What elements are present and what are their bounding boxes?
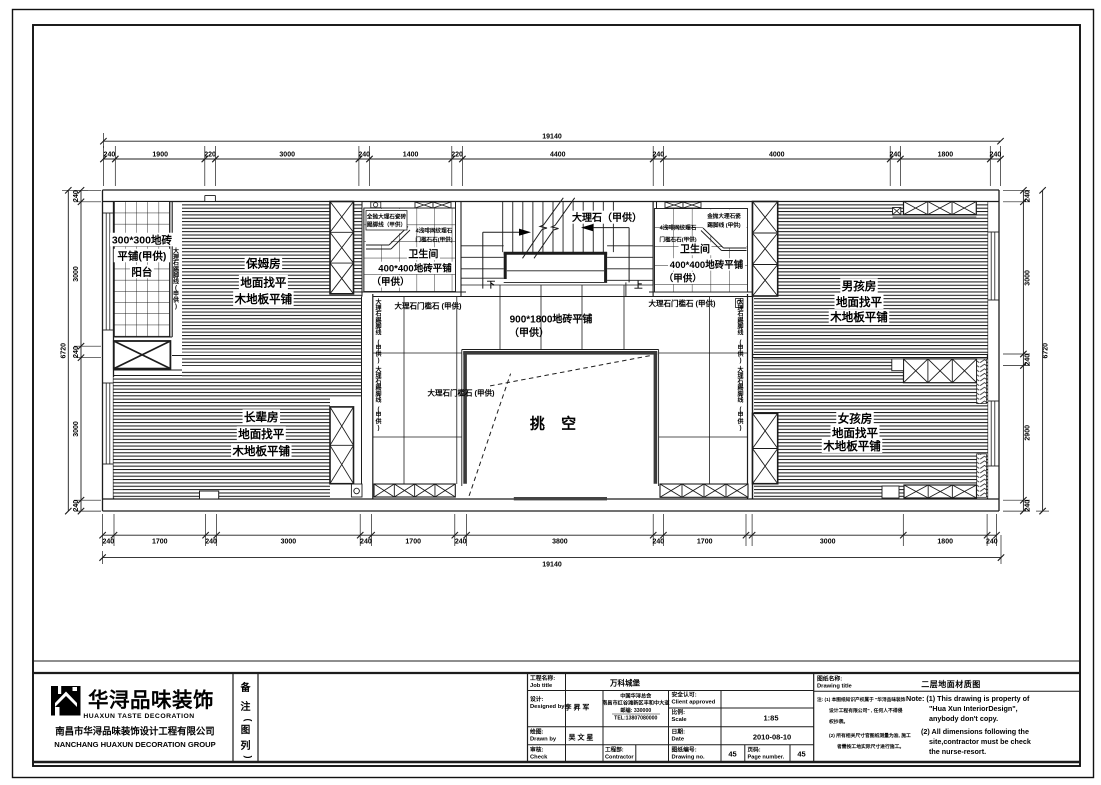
svg-text:脚: 脚 xyxy=(737,322,743,330)
svg-text:设计:: 设计: xyxy=(530,695,544,703)
svg-text:日期:: 日期: xyxy=(672,728,686,736)
svg-text:理: 理 xyxy=(737,371,743,379)
svg-text:踢脚线（甲供）: 踢脚线（甲供） xyxy=(367,221,406,229)
svg-text:4浅啡网纹理石: 4浅啡网纹理石 xyxy=(416,227,453,235)
svg-text:Check: Check xyxy=(530,755,548,761)
svg-text:工程部:: 工程部: xyxy=(605,746,624,754)
svg-text:石: 石 xyxy=(374,311,381,318)
svg-text:踢脚线 (甲供): 踢脚线 (甲供) xyxy=(707,221,740,229)
svg-text:3000: 3000 xyxy=(279,152,295,159)
svg-text:240: 240 xyxy=(358,152,370,159)
svg-text:石: 石 xyxy=(736,311,743,318)
svg-text:(2) All dimensions following t: (2) All dimensions following the xyxy=(921,727,1029,736)
svg-text:45: 45 xyxy=(797,750,805,759)
svg-text:6720: 6720 xyxy=(61,343,68,359)
svg-text:240: 240 xyxy=(205,539,217,546)
svg-text:大: 大 xyxy=(737,365,743,373)
svg-text:240: 240 xyxy=(73,346,80,358)
svg-text:甲: 甲 xyxy=(737,411,743,419)
svg-text:设计工程有限公司" , 任何人不得侵: 设计工程有限公司" , 任何人不得侵 xyxy=(829,707,903,714)
svg-text:): ) xyxy=(378,358,380,364)
svg-text:(2) 所有相关尺寸官图纸测量为准, 施工: (2) 所有相关尺寸官图纸测量为准, 施工 xyxy=(829,732,911,739)
svg-text:Client approved: Client approved xyxy=(672,700,716,706)
svg-text:6720: 6720 xyxy=(1043,343,1050,359)
svg-text:石: 石 xyxy=(736,379,743,386)
svg-text:240: 240 xyxy=(986,539,998,546)
svg-text:19140: 19140 xyxy=(542,134,562,141)
svg-text:240: 240 xyxy=(652,152,664,159)
svg-text:(: ( xyxy=(378,407,380,413)
svg-text:木地板平铺: 木地板平铺 xyxy=(829,310,888,324)
svg-text:备: 备 xyxy=(240,681,252,694)
svg-text:中国华浔总会: 中国华浔总会 xyxy=(620,692,652,700)
svg-text:240: 240 xyxy=(889,152,901,159)
svg-text:线: 线 xyxy=(737,396,743,404)
svg-text:理: 理 xyxy=(375,304,381,312)
svg-text:3000: 3000 xyxy=(281,539,297,546)
svg-text:2900: 2900 xyxy=(1025,425,1032,441)
svg-text:女孩房: 女孩房 xyxy=(838,412,873,426)
svg-text:门槛石石(甲供): 门槛石石(甲供) xyxy=(415,236,452,244)
svg-text:列: 列 xyxy=(241,739,251,752)
svg-text:线: 线 xyxy=(375,396,381,404)
svg-text:Note: (1) This drawing is prop: Note: (1) This drawing is property of xyxy=(906,694,1030,703)
svg-text:踢: 踢 xyxy=(173,265,179,273)
svg-text:240: 240 xyxy=(73,190,80,202)
svg-text:大: 大 xyxy=(173,247,179,255)
svg-text:TEL:13807080000: TEL:13807080000 xyxy=(614,716,657,722)
svg-text:1700: 1700 xyxy=(405,539,421,546)
svg-text:保姆房: 保姆房 xyxy=(245,257,281,271)
svg-text:): ) xyxy=(740,425,742,431)
svg-text:线: 线 xyxy=(173,278,179,286)
svg-text:下: 下 xyxy=(487,280,496,290)
svg-text:踢: 踢 xyxy=(737,384,743,392)
svg-text:供: 供 xyxy=(736,417,743,425)
svg-text:): ) xyxy=(175,304,177,310)
svg-text:甲: 甲 xyxy=(375,411,381,419)
svg-text:3800: 3800 xyxy=(552,539,568,546)
svg-text:220: 220 xyxy=(451,152,463,159)
svg-text:华浔品味装饰: 华浔品味装饰 xyxy=(88,688,214,712)
svg-text:240: 240 xyxy=(990,152,1002,159)
svg-text:"Hua Xun InteriorDesign",: "Hua Xun InteriorDesign", xyxy=(929,704,1018,713)
svg-text:理: 理 xyxy=(173,253,179,261)
svg-text:供: 供 xyxy=(374,350,381,358)
svg-text:脚: 脚 xyxy=(737,390,743,398)
svg-text:Drawing title: Drawing title xyxy=(817,684,853,690)
svg-text:工程名称:: 工程名称: xyxy=(530,674,555,682)
svg-text:Job title: Job title xyxy=(530,683,553,689)
svg-text:李 昇 军: 李 昇 军 xyxy=(564,703,590,712)
svg-text:石: 石 xyxy=(172,260,179,267)
svg-text:900*1800地砖平铺: 900*1800地砖平铺 xyxy=(510,313,593,326)
svg-text:240: 240 xyxy=(73,500,80,512)
svg-text:大: 大 xyxy=(737,298,743,306)
svg-text:者需按工地实际尺寸进行施工。: 者需按工地实际尺寸进行施工。 xyxy=(836,743,904,750)
svg-text:4000: 4000 xyxy=(769,152,785,159)
svg-text:地面找平: 地面找平 xyxy=(238,427,284,441)
svg-text:踢: 踢 xyxy=(737,316,743,324)
svg-text:理: 理 xyxy=(375,371,381,379)
svg-text:(: ( xyxy=(740,407,742,413)
svg-text:45: 45 xyxy=(728,750,736,759)
svg-text:anybody don't copy.: anybody don't copy. xyxy=(929,714,998,723)
svg-text:踢: 踢 xyxy=(375,316,381,324)
svg-text:图纸名称:: 图纸名称: xyxy=(817,675,842,683)
svg-text:长辈房: 长辈房 xyxy=(244,410,279,424)
svg-text:比例:: 比例: xyxy=(672,708,686,716)
svg-text:Drawing no.: Drawing no. xyxy=(672,755,706,761)
svg-text:全抛大理石瓷砖: 全抛大理石瓷砖 xyxy=(366,213,407,221)
svg-text:HUAXUN TASTE DECORATION: HUAXUN TASTE DECORATION xyxy=(83,713,194,720)
svg-text:平铺(甲供): 平铺(甲供) xyxy=(117,250,166,263)
svg-text:3000: 3000 xyxy=(820,539,836,546)
svg-text:NANCHANG HUAXUN DECORATION: NANCHANG HUAXUN DECORATION GROUP xyxy=(54,740,215,749)
svg-text:脚: 脚 xyxy=(375,322,381,330)
svg-text:注: (1) 本图纸知识产权属于 "华浔品味装饰: 注: (1) 本图纸知识产权属于 "华浔品味装饰 xyxy=(817,696,906,703)
svg-text:挑 空: 挑 空 xyxy=(530,415,582,433)
svg-text:大: 大 xyxy=(375,365,381,373)
svg-text:220: 220 xyxy=(204,152,216,159)
svg-text:1800: 1800 xyxy=(938,152,954,159)
svg-text:石: 石 xyxy=(374,379,381,386)
svg-text:3000: 3000 xyxy=(73,266,80,282)
svg-text:Scale: Scale xyxy=(672,717,688,723)
svg-text:the nurse-resort.: the nurse-resort. xyxy=(929,747,986,756)
svg-text:（甲供）: （甲供） xyxy=(509,326,549,339)
svg-text:南昌市华浔品味装饰设计工程有限公司: 南昌市华浔品味装饰设计工程有限公司 xyxy=(55,726,214,737)
svg-text:240: 240 xyxy=(1025,354,1032,366)
svg-text:阳台: 阳台 xyxy=(131,266,152,279)
svg-text:1:85: 1:85 xyxy=(763,714,778,723)
svg-text:1700: 1700 xyxy=(697,539,713,546)
svg-text:1400: 1400 xyxy=(403,152,419,159)
svg-text:吴 文 星: 吴 文 星 xyxy=(569,733,594,742)
svg-text:供: 供 xyxy=(172,296,179,304)
svg-text:240: 240 xyxy=(652,539,664,546)
svg-text:Date: Date xyxy=(672,737,685,743)
svg-text:二层地面材质图: 二层地面材质图 xyxy=(921,679,981,689)
svg-text:审核:: 审核: xyxy=(530,746,544,754)
svg-text:(: ( xyxy=(740,340,742,346)
svg-text:1800: 1800 xyxy=(937,539,953,546)
svg-text:Page number.: Page number. xyxy=(748,755,785,761)
svg-text:脚: 脚 xyxy=(375,390,381,398)
svg-text:供: 供 xyxy=(736,350,743,358)
svg-text:图: 图 xyxy=(241,725,251,736)
svg-text:240: 240 xyxy=(360,539,372,546)
svg-text:大理石（甲供）: 大理石（甲供） xyxy=(572,211,642,224)
svg-text:页码:: 页码: xyxy=(748,746,761,754)
svg-text:地面找平: 地面找平 xyxy=(240,276,286,290)
svg-text:1700: 1700 xyxy=(152,539,168,546)
svg-text:1900: 1900 xyxy=(152,152,168,159)
svg-text:地面找平: 地面找平 xyxy=(832,426,878,440)
svg-text:Drawn by: Drawn by xyxy=(530,737,557,743)
svg-text:240: 240 xyxy=(102,539,114,546)
svg-text:（甲供）: （甲供） xyxy=(371,276,409,288)
svg-text:理: 理 xyxy=(737,304,743,312)
svg-text:2010-08-10: 2010-08-10 xyxy=(753,733,791,742)
svg-text:供: 供 xyxy=(374,417,381,425)
svg-text:卫生间: 卫生间 xyxy=(680,243,710,256)
svg-text:3000: 3000 xyxy=(1025,270,1032,286)
svg-text:300*300地砖: 300*300地砖 xyxy=(112,234,173,247)
svg-text:3000: 3000 xyxy=(73,421,80,437)
svg-text:大: 大 xyxy=(375,298,381,306)
svg-text:线: 线 xyxy=(375,329,381,337)
svg-text:地面找平: 地面找平 xyxy=(836,295,882,309)
svg-text:): ) xyxy=(378,425,380,431)
svg-text:脚: 脚 xyxy=(173,271,179,279)
svg-text:(: ( xyxy=(378,340,380,346)
svg-text:site,contractor must be check: site,contractor must be check xyxy=(929,737,1031,746)
svg-text:图纸编号:: 图纸编号: xyxy=(672,746,697,754)
svg-text:甲: 甲 xyxy=(375,344,381,352)
svg-text:甲: 甲 xyxy=(173,290,179,298)
svg-text:甲: 甲 xyxy=(737,344,743,352)
svg-text:): ) xyxy=(244,756,254,759)
svg-text:240: 240 xyxy=(1025,500,1032,512)
svg-text:400*400地砖平铺: 400*400地砖平铺 xyxy=(670,259,744,271)
svg-text:金抛大理石瓷: 金抛大理石瓷 xyxy=(706,212,741,220)
svg-text:240: 240 xyxy=(455,539,467,546)
svg-text:踢: 踢 xyxy=(375,384,381,392)
svg-text:): ) xyxy=(740,358,742,364)
svg-text:Designed by: Designed by xyxy=(530,704,565,710)
svg-text:4400: 4400 xyxy=(550,152,566,159)
svg-text:4浅啡网纹理石: 4浅啡网纹理石 xyxy=(660,224,697,232)
svg-text:大理石门槛石 (甲供): 大理石门槛石 (甲供) xyxy=(648,298,716,308)
svg-text:(: ( xyxy=(175,286,177,292)
svg-text:万科城堡: 万科城堡 xyxy=(609,678,640,688)
svg-text:安全认可:: 安全认可: xyxy=(672,691,697,699)
svg-text:19140: 19140 xyxy=(542,562,562,569)
svg-text:240: 240 xyxy=(1025,190,1032,202)
svg-text:南昌市红谷滩新区丰和中大道: 南昌市红谷滩新区丰和中大道 xyxy=(602,699,670,707)
svg-text:木地板平铺: 木地板平铺 xyxy=(232,444,291,458)
svg-text:权抄袭。: 权抄袭。 xyxy=(828,718,848,725)
svg-text:绘图:: 绘图: xyxy=(530,728,544,736)
svg-text:木地板平铺: 木地板平铺 xyxy=(822,439,881,453)
svg-text:（甲供）: （甲供） xyxy=(664,273,702,285)
svg-text:邮编: 330000: 邮编: 330000 xyxy=(620,706,651,714)
svg-text:男孩房: 男孩房 xyxy=(842,279,877,293)
svg-text:(: ( xyxy=(244,719,254,722)
svg-text:木地板平铺: 木地板平铺 xyxy=(234,292,293,306)
svg-text:大理石门槛石 (甲供): 大理石门槛石 (甲供) xyxy=(394,301,462,311)
svg-text:注: 注 xyxy=(241,700,251,713)
svg-text:240: 240 xyxy=(104,152,116,159)
svg-text:卫生间: 卫生间 xyxy=(408,248,438,261)
svg-text:大理石门槛石 (甲供): 大理石门槛石 (甲供) xyxy=(427,388,495,398)
svg-text:Contractor: Contractor xyxy=(605,755,634,761)
svg-text:400*400地砖平铺: 400*400地砖平铺 xyxy=(378,263,452,275)
svg-text:线: 线 xyxy=(737,329,743,337)
